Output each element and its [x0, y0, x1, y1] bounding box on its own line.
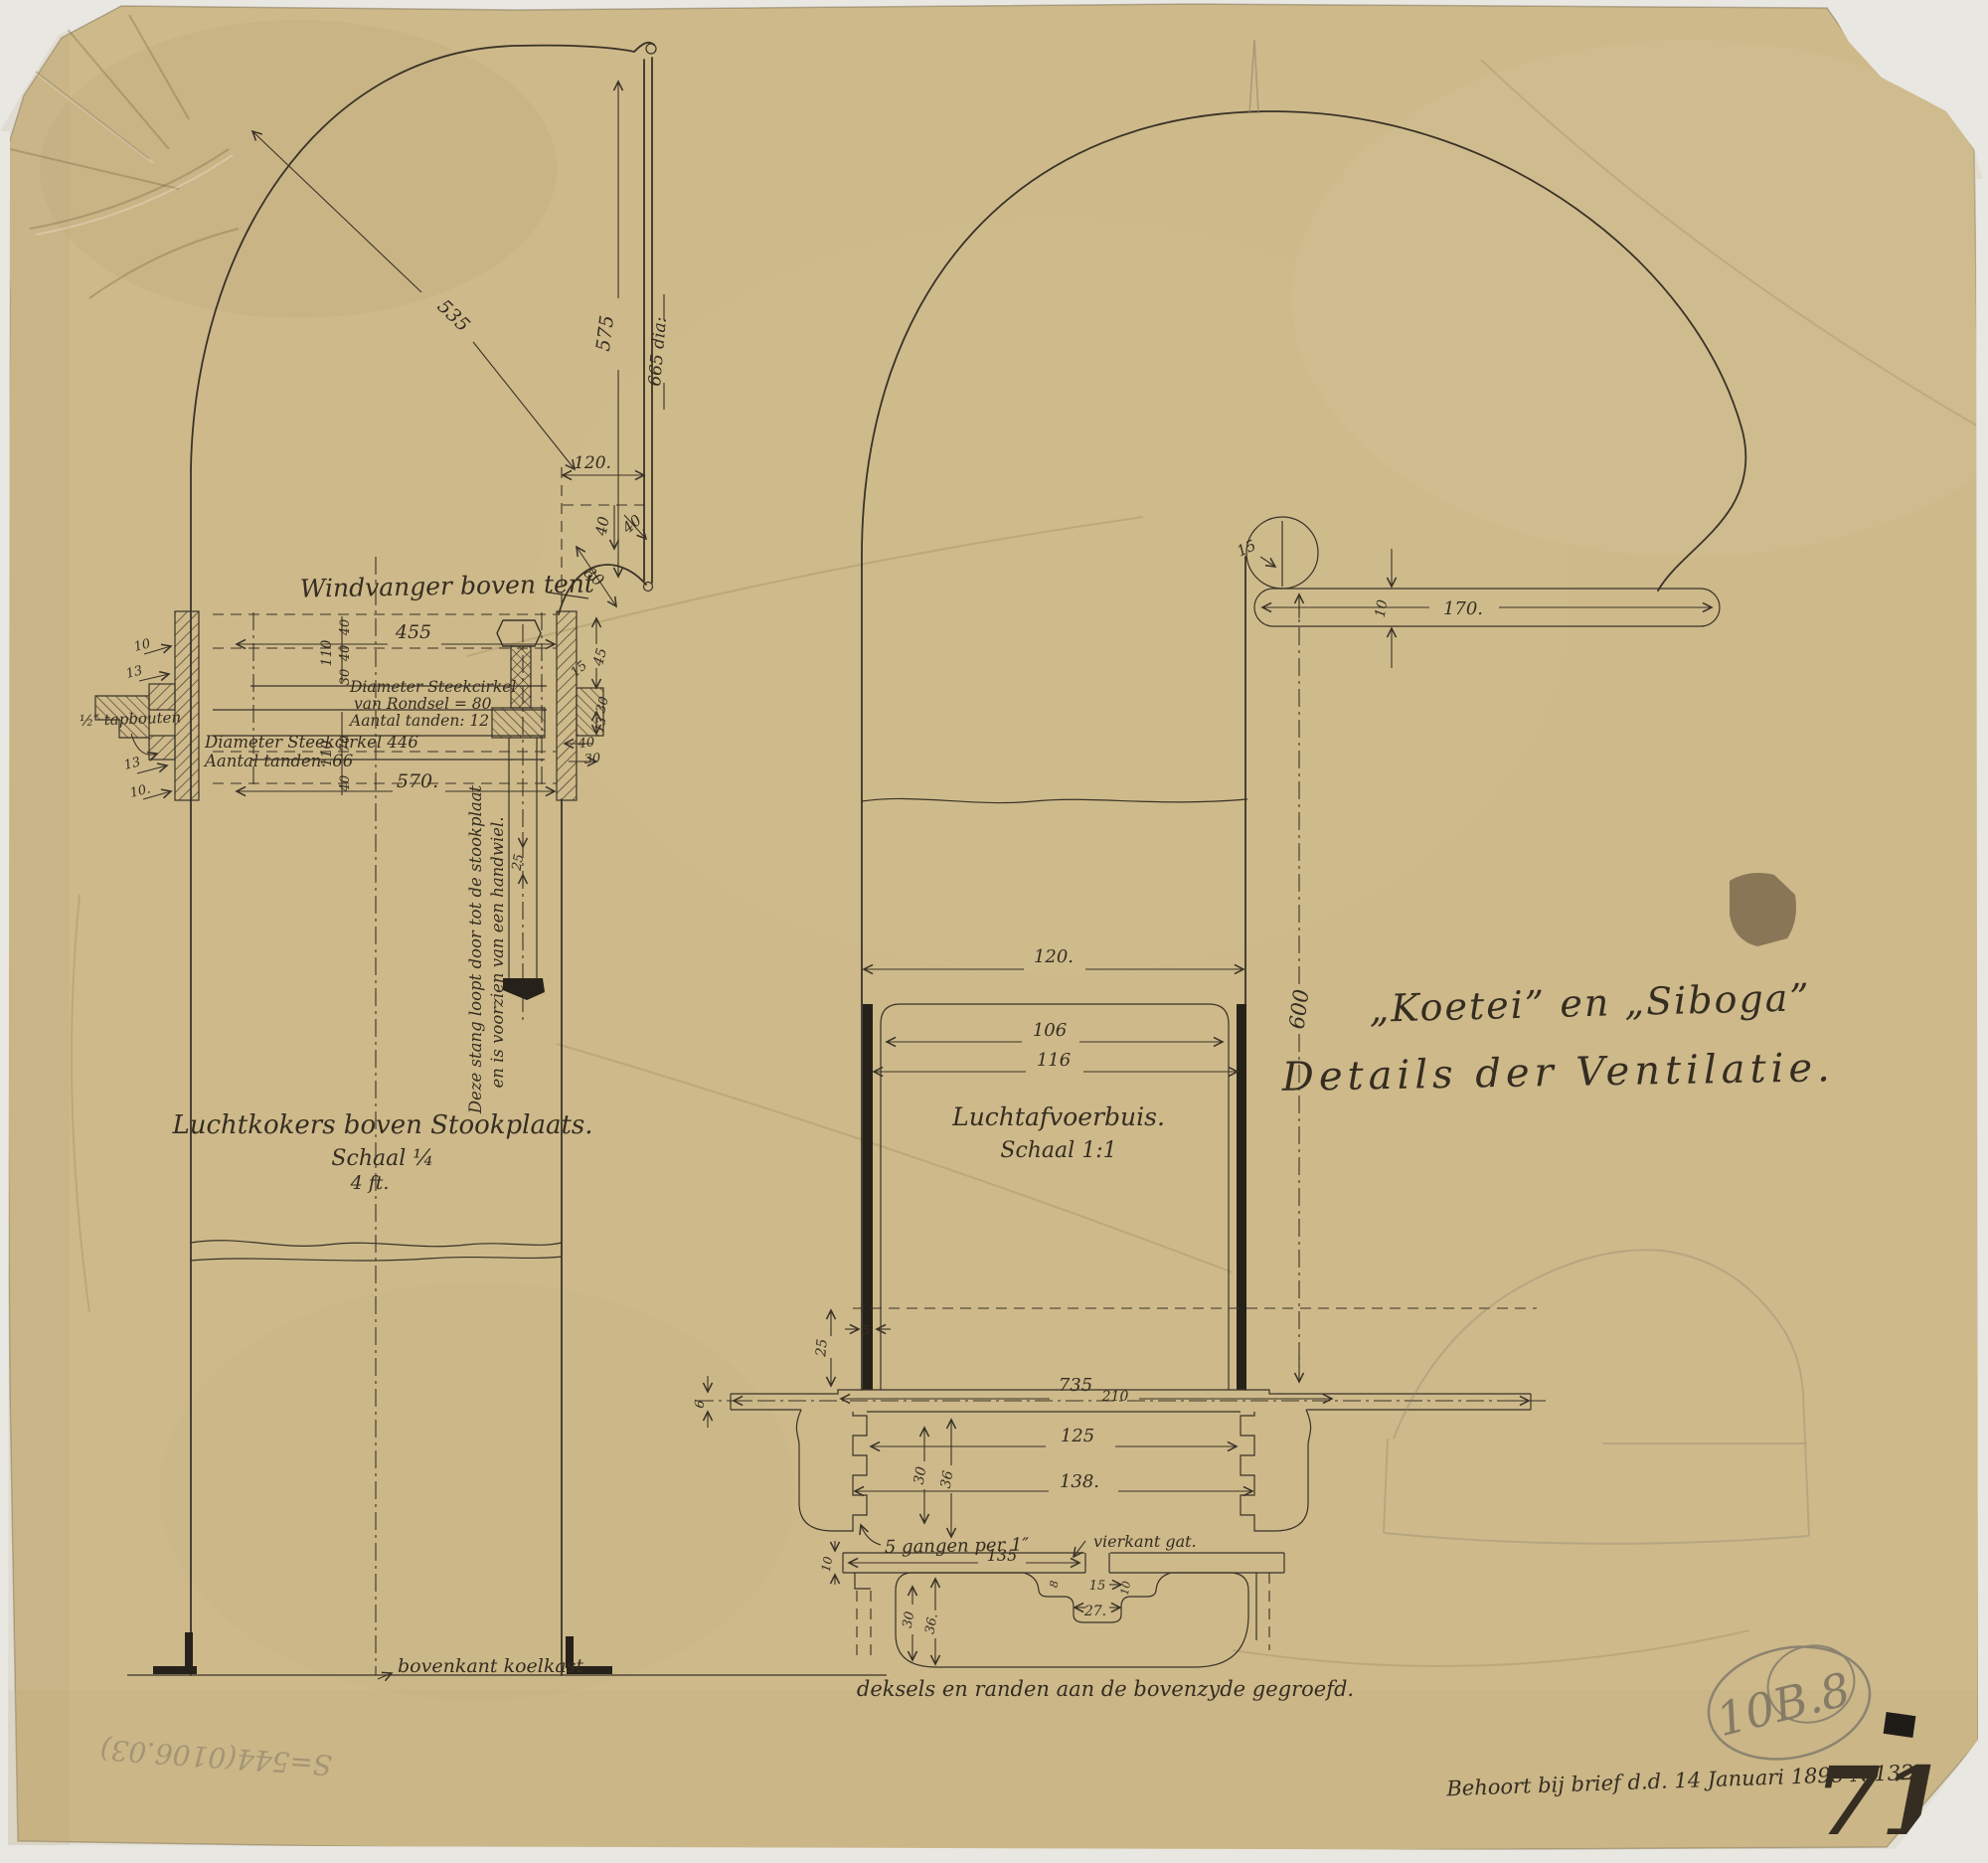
dim-plate-width: 735 [1059, 1375, 1092, 1396]
dim-flange-bottom: 570. [397, 770, 438, 792]
drawing-sheet: Windvanger boven tent Luchtkokers boven … [0, 0, 1988, 1863]
paper-sheet [0, 0, 1988, 1863]
dim-right-40: 40 [577, 736, 595, 752]
dim-plate-inset: 25 [813, 1338, 831, 1358]
dim-hole-right: 10 [1118, 1580, 1133, 1596]
dim-lid-depth: 30 [901, 1610, 918, 1629]
dim-flange-top: 455 [395, 621, 431, 643]
left-view-scale: Schaal ¼ [331, 1146, 433, 1171]
lid-caption: deksels en randen aan de bovenzyde gegro… [857, 1677, 1354, 1701]
gear-note-large-1: Diameter Steekcirkel 446 [204, 733, 418, 752]
dim-collar-depth: 30 [911, 1465, 930, 1485]
dim-tube-outer: 116 [1037, 1050, 1071, 1071]
bolt-label: ½″ tapbouten [80, 708, 182, 730]
left-view-title: Luchtkokers boven Stookplaats. [171, 1110, 592, 1140]
dim-hole-width: 15 [1089, 1579, 1106, 1594]
dim-mouth-height: 575 [592, 314, 618, 353]
dim-rod-width: 25 [510, 853, 528, 873]
dim-groove-width: 27. [1083, 1604, 1106, 1619]
left-view-scale-note: 4 ft. [350, 1172, 390, 1194]
left-view-caption: Windvanger boven tent [300, 569, 596, 602]
stamp-mark [1884, 1712, 1916, 1738]
dim-bar-thickness: 10 [1373, 598, 1392, 618]
dim-chain-bot-110: 110 [319, 741, 335, 767]
dim-lip-offset: 40 [591, 515, 612, 538]
rod-note-1: Deze stang loopt door tot de stookplaat [466, 784, 485, 1114]
dim-right-30b: 30 [583, 752, 601, 767]
gear-note-small-3: Aantal tanden: 12 [348, 712, 489, 730]
center-view-title: Luchtafvoerbuis. [951, 1102, 1165, 1131]
sheet-title-2: Details der Ventilatie. [1280, 1045, 1835, 1101]
dim-thread-outer: 138. [1060, 1471, 1099, 1492]
dim-bar-length: 170. [1443, 598, 1483, 619]
right-flange-block [557, 611, 577, 800]
center-view-scale: Schaal 1:1 [1000, 1138, 1116, 1163]
dim-duct-width: 120. [1034, 946, 1074, 967]
dim-wall-thickness: 5 [862, 1323, 870, 1337]
dim-plate-center: 210 [1101, 1389, 1129, 1405]
dim-duct-height: 600 [1285, 988, 1314, 1031]
dim-chain-top-110: 110 [319, 640, 335, 667]
dim-lid-plate: 10 [819, 1555, 836, 1573]
dim-tube-inner: 106 [1033, 1020, 1067, 1041]
dim-lid-half-width: 135 [987, 1546, 1018, 1565]
dim-chain-bot-40: 40 [338, 775, 353, 793]
gear-note-small-2: van Rondsel = 80 [354, 695, 492, 713]
gear-note-small-1: Diameter Steekcirkel [349, 678, 516, 696]
dim-chain-top-30: 30 [338, 669, 353, 686]
tube-wall-right [1237, 1004, 1246, 1390]
left-flange-block [175, 611, 199, 800]
dim-chain-top-40a: 40 [338, 619, 353, 637]
baseline-label: bovenkant koelkast [398, 1655, 583, 1677]
dim-chain-top-40b: 40 [338, 645, 353, 663]
dim-neck-width: 120. [574, 453, 611, 473]
rod-note-2: en is voorzien van een handwiel. [488, 816, 507, 1088]
dim-thread-inner: 125 [1061, 1426, 1094, 1446]
dim-chain-bot-70: 70 [338, 736, 353, 753]
ventilation-drawing: Windvanger boven tent Luchtkokers boven … [0, 0, 1988, 1863]
dim-collar-height: 36 [938, 1469, 957, 1489]
hole-label: vierkant gat. [1093, 1532, 1197, 1551]
